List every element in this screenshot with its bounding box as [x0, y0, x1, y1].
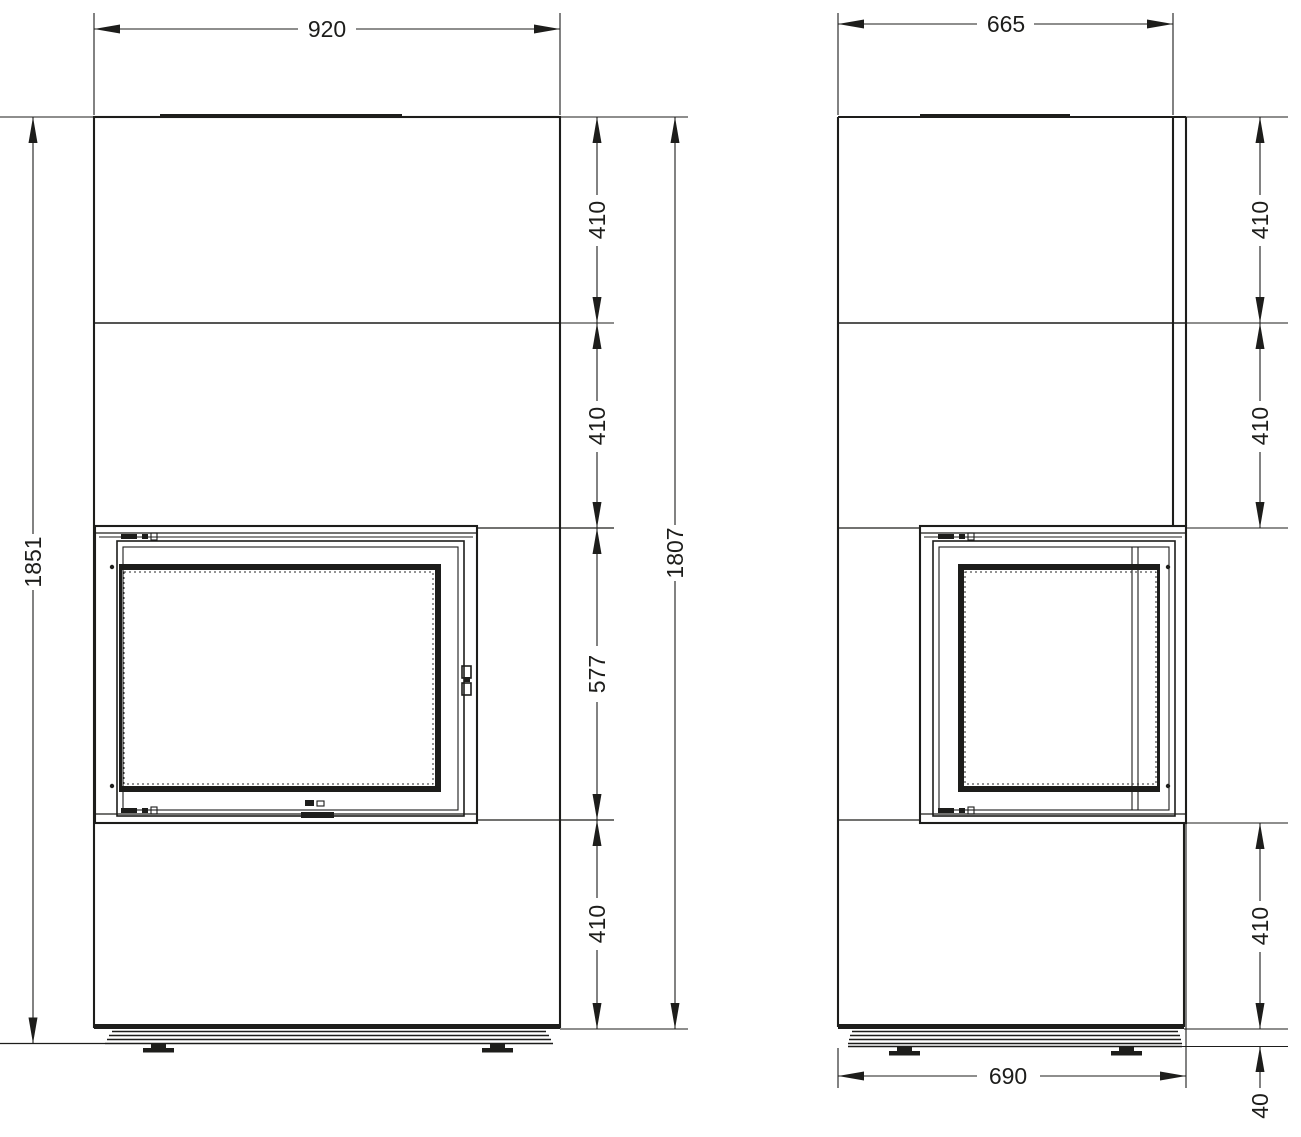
front-door-latch-bar: [301, 812, 334, 818]
front-glass-stipple: [124, 572, 433, 784]
dim-label-front-overall-height: 1851: [20, 536, 46, 587]
arrow-up-icon: [1256, 323, 1265, 349]
dim-label-front-body-height: 1807: [662, 527, 688, 578]
arrow-up-icon: [1256, 823, 1265, 849]
front-foot-left-stem: [151, 1044, 166, 1048]
dim-label-front-section-1: 410: [584, 201, 610, 239]
front-hinge-top-icon: [121, 534, 137, 539]
arrow-up-icon: [29, 117, 38, 143]
dim-side-sections: 410 410 410: [1182, 117, 1288, 1047]
side-view: 665 410 410 410: [838, 11, 1288, 1119]
front-foot-right-base: [482, 1048, 513, 1053]
arrow-down-icon: [671, 1003, 680, 1029]
technical-drawing: 920 1851 410 410: [0, 0, 1301, 1137]
side-glass-gasket-left: [958, 564, 964, 792]
arrow-down-icon: [1256, 502, 1265, 528]
front-door-leaf: [117, 541, 464, 816]
side-plinth: [848, 1032, 1182, 1056]
dim-side-plinth-height: 40: [1247, 1047, 1273, 1119]
front-door-handle-pin: [464, 677, 470, 682]
side-hinge-dot-bottom: [1166, 784, 1170, 788]
front-hinge-bottom-pin-icon: [142, 808, 148, 813]
dim-label-side-section-2: 410: [1247, 407, 1273, 445]
arrow-up-icon: [593, 323, 602, 349]
side-hinge-dot-top: [1166, 565, 1170, 569]
front-body-outline: [94, 117, 560, 1027]
arrow-down-icon: [593, 297, 602, 323]
front-glass-gasket-right: [435, 564, 441, 792]
front-glass-gasket-left: [119, 564, 122, 792]
arrow-up-icon: [593, 117, 602, 143]
arrow-down-icon: [1256, 1003, 1265, 1029]
side-window: [920, 526, 1186, 823]
side-hinge-bottom-pin-icon: [959, 808, 965, 813]
arrow-right-icon: [1147, 20, 1173, 29]
dim-label-side-depth: 665: [987, 11, 1025, 37]
side-glass-gasket-top: [958, 564, 1160, 570]
front-hinge-dot-bottom: [110, 784, 114, 788]
arrow-down-icon: [593, 1003, 602, 1029]
arrow-up-icon: [593, 820, 602, 846]
dim-side-depth: 665: [838, 11, 1173, 115]
arrow-up-icon: [1256, 117, 1265, 143]
side-glass-stipple: [965, 572, 1156, 784]
arrow-right-icon: [1160, 1072, 1186, 1081]
front-door-latch-right: [317, 801, 324, 806]
dim-label-front-width: 920: [308, 16, 346, 42]
dim-label-side-section-3: 410: [1247, 907, 1273, 945]
front-foot-left-base: [143, 1048, 174, 1053]
front-door: [95, 526, 477, 823]
side-hinge-bottom-icon: [938, 808, 954, 813]
front-hinge-dot-top: [110, 565, 114, 569]
arrow-down-icon: [29, 1018, 38, 1044]
dim-front-overall-height: 1851: [0, 117, 94, 1044]
arrow-left-icon: [838, 20, 864, 29]
side-glass-gasket-right: [1157, 564, 1160, 792]
arrow-left-icon: [94, 25, 120, 34]
side-window-leaf: [933, 541, 1175, 816]
arrow-left-icon: [838, 1072, 864, 1081]
arrow-down-icon: [593, 502, 602, 528]
dim-label-front-section-3: 577: [584, 655, 610, 693]
front-door-latch-left: [305, 800, 314, 806]
dim-label-front-section-4: 410: [584, 905, 610, 943]
dim-label-side-plinth-height: 40: [1247, 1093, 1273, 1119]
side-foot-right-base: [1111, 1051, 1142, 1056]
front-hinge-bottom-icon: [121, 808, 137, 813]
dim-label-side-section-1: 410: [1247, 201, 1273, 239]
side-foot-left-base: [889, 1051, 920, 1056]
dim-front-body-height: 1807: [662, 117, 688, 1029]
side-window-leaf-inner: [939, 547, 1169, 810]
arrow-up-icon: [1256, 1047, 1265, 1073]
side-foot-right-stem: [1119, 1047, 1134, 1051]
front-foot-right-stem: [490, 1044, 505, 1048]
dim-front-width: 920: [94, 13, 560, 115]
arrow-up-icon: [671, 117, 680, 143]
front-door-outer-frame: [95, 526, 477, 823]
side-hinge-top-pin-icon: [959, 534, 965, 539]
front-plinth: [0, 1032, 553, 1053]
front-hinge-top-pin-icon: [142, 534, 148, 539]
drawing-svg: 920 1851 410 410: [0, 0, 1301, 1137]
side-glass-gasket-bottom: [958, 786, 1160, 792]
arrow-down-icon: [1256, 297, 1265, 323]
front-view: 920 1851 410 410: [0, 13, 688, 1053]
dim-label-side-base-depth: 690: [989, 1063, 1027, 1089]
arrow-right-icon: [534, 25, 560, 34]
front-glass-gasket-top: [119, 564, 441, 570]
side-foot-left-stem: [897, 1047, 912, 1051]
front-glass-gasket-bottom: [119, 786, 441, 792]
arrow-down-icon: [593, 794, 602, 820]
front-door-leaf-inner: [123, 547, 458, 810]
arrow-up-icon: [593, 528, 602, 554]
dim-label-front-section-2: 410: [584, 407, 610, 445]
side-hinge-top-icon: [938, 534, 954, 539]
